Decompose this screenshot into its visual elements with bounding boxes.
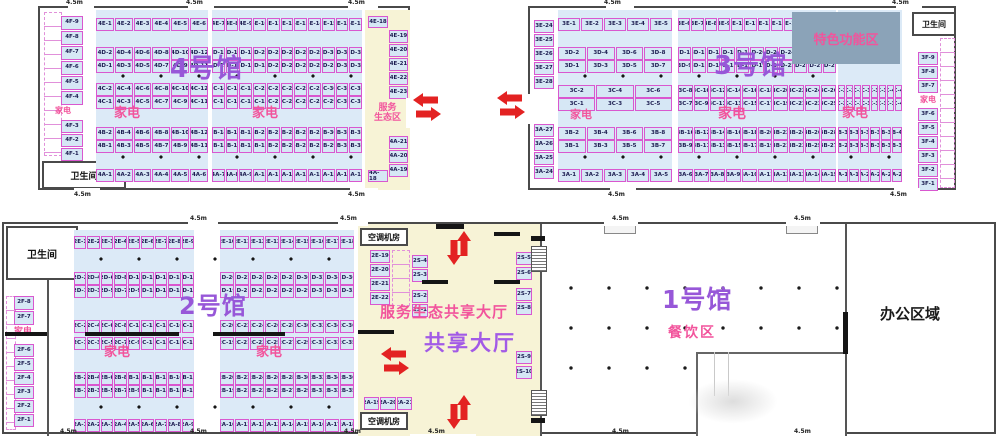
booth-2C-36[interactable]: 2C-36 xyxy=(340,320,354,333)
booth-4F-9[interactable]: 4F-9 xyxy=(61,16,83,30)
booth-2E-13[interactable]: 2E-13 xyxy=(265,236,279,249)
booth-3E-2[interactable]: 3E-2 xyxy=(581,18,603,31)
booth-4D-4[interactable]: 4D-4 xyxy=(115,47,133,60)
booth-4A-9[interactable]: 4A-9 xyxy=(239,169,252,182)
booth-3C-12[interactable]: 3C-12 xyxy=(710,85,725,98)
booth-4F-2[interactable]: 4F-2 xyxy=(61,134,83,147)
booth-3C-10[interactable]: 3C-10 xyxy=(694,85,709,98)
booth-3A-6[interactable]: 3A-6 xyxy=(678,169,693,182)
booth-3C-14[interactable]: 3C-14 xyxy=(726,85,741,98)
booth-4E-11[interactable]: 4E-11 xyxy=(267,18,280,31)
booth-4D-24[interactable]: 4D-24 xyxy=(281,47,294,60)
booth-3E-27[interactable]: 3E-27 xyxy=(534,62,554,75)
booth-4F-6[interactable]: 4F-6 xyxy=(61,61,83,75)
booth-2F-8[interactable]: 2F-8 xyxy=(14,296,34,310)
booth-3C-32[interactable]: 3C-32 xyxy=(854,85,861,98)
booth-2A-5[interactable]: 2A-5 xyxy=(128,419,140,432)
booth-3B-19[interactable]: 3B-19 xyxy=(758,140,773,153)
booth-2A-12[interactable]: 2A-12 xyxy=(250,419,264,432)
booth-3A-13[interactable]: 3A-13 xyxy=(789,169,804,182)
booth-3B-4[interactable]: 3B-4 xyxy=(587,127,615,140)
booth-2B-33[interactable]: 2B-33 xyxy=(325,385,339,398)
booth-3C-22[interactable]: 3C-22 xyxy=(789,85,804,98)
booth-2D-4[interactable]: 2D-4 xyxy=(87,272,99,285)
booth-3E-3[interactable]: 3E-3 xyxy=(604,18,626,31)
booth-2C-11[interactable]: 2C-11 xyxy=(141,337,153,350)
booth-2D-9[interactable]: 2D-9 xyxy=(128,285,140,298)
booth-2D-27[interactable]: 2D-27 xyxy=(280,285,294,298)
booth-4C-22[interactable]: 4C-22 xyxy=(267,83,280,96)
booth-3C-41[interactable]: 3C-41 xyxy=(895,98,902,111)
hall3-dashed-booth-column[interactable] xyxy=(940,38,955,188)
booth-2B-3[interactable]: 2B-3 xyxy=(87,385,99,398)
booth-4D-29[interactable]: 4D-29 xyxy=(322,60,335,73)
booth-3C-21[interactable]: 3C-21 xyxy=(789,98,804,111)
booth-2B-29[interactable]: 2B-29 xyxy=(295,385,309,398)
booth-3B-38[interactable]: 3B-38 xyxy=(881,127,891,140)
booth-4C-9[interactable]: 4C-9 xyxy=(171,96,189,109)
booth-3B-31[interactable]: 3B-31 xyxy=(849,140,859,153)
booth-2D-13[interactable]: 2D-13 xyxy=(155,285,167,298)
booth-4A-15[interactable]: 4A-15 xyxy=(322,169,335,182)
booth-2B-8[interactable]: 2B-8 xyxy=(114,372,126,385)
booth-4A-6[interactable]: 4A-6 xyxy=(190,169,208,182)
booth-3C-37[interactable]: 3C-37 xyxy=(879,98,886,111)
booth-2E-9[interactable]: 2E-9 xyxy=(182,236,194,249)
booth-2B-1[interactable]: 2B-1 xyxy=(74,385,86,398)
booth-2C-29[interactable]: 2C-29 xyxy=(295,337,309,350)
booth-4B-2[interactable]: 4B-2 xyxy=(96,127,114,140)
booth-4B-11[interactable]: 4B-11 xyxy=(190,140,208,153)
booth-2S-4[interactable]: 2S-4 xyxy=(412,255,428,268)
booth-4B-29[interactable]: 4B-29 xyxy=(322,140,335,153)
booth-4C-14[interactable]: 4C-14 xyxy=(212,83,225,96)
booth-4A-12[interactable]: 4A-12 xyxy=(281,169,294,182)
booth-3A-24[interactable]: 3A-24 xyxy=(534,166,554,179)
booth-3F-8[interactable]: 3F-8 xyxy=(918,66,938,79)
booth-3B-30[interactable]: 3B-30 xyxy=(838,127,848,140)
booth-3E-12[interactable]: 3E-12 xyxy=(758,18,770,31)
booth-4A-5[interactable]: 4A-5 xyxy=(171,169,189,182)
booth-3A-10[interactable]: 3A-10 xyxy=(742,169,757,182)
booth-3E-26[interactable]: 3E-26 xyxy=(534,48,554,61)
booth-4C-8[interactable]: 4C-8 xyxy=(152,83,170,96)
booth-2B-17[interactable]: 2B-17 xyxy=(182,385,194,398)
booth-3D-7[interactable]: 3D-7 xyxy=(644,60,672,73)
booth-4C-1[interactable]: 4C-1 xyxy=(96,96,114,109)
booth-4B-6[interactable]: 4B-6 xyxy=(134,127,152,140)
booth-3B-16[interactable]: 3B-16 xyxy=(726,127,741,140)
booth-3B-18[interactable]: 3B-18 xyxy=(742,127,757,140)
booth-2B-12[interactable]: 2B-12 xyxy=(141,372,153,385)
booth-3B-22[interactable]: 3B-22 xyxy=(773,127,788,140)
booth-2B-10[interactable]: 2B-10 xyxy=(128,372,140,385)
booth-3D-9[interactable]: 3D-9 xyxy=(678,60,691,73)
booth-4A-7[interactable]: 4A-7 xyxy=(212,169,225,182)
booth-3C-39[interactable]: 3C-39 xyxy=(887,98,894,111)
booth-2B-13[interactable]: 2B-13 xyxy=(155,385,167,398)
booth-2D-30[interactable]: 2D-30 xyxy=(295,272,309,285)
booth-2B-20[interactable]: 2B-20 xyxy=(220,372,234,385)
booth-2B-36[interactable]: 2B-36 xyxy=(340,372,354,385)
booth-4E-2[interactable]: 4E-2 xyxy=(115,18,133,31)
booth-3C-38[interactable]: 3C-38 xyxy=(879,85,886,98)
booth-4E-10[interactable]: 4E-10 xyxy=(253,18,266,31)
booth-3B-26[interactable]: 3B-26 xyxy=(805,127,820,140)
booth-2A-21[interactable]: 2A-21 xyxy=(397,397,412,410)
booth-4E-8[interactable]: 4E-8 xyxy=(226,18,239,31)
booth-3B-36[interactable]: 3B-36 xyxy=(870,127,880,140)
booth-2D-26[interactable]: 2D-26 xyxy=(265,272,279,285)
booth-3C-40[interactable]: 3C-40 xyxy=(887,85,894,98)
booth-3D-4[interactable]: 3D-4 xyxy=(587,47,615,60)
booth-4E-4[interactable]: 4E-4 xyxy=(152,18,170,31)
booth-2A-7[interactable]: 2A-7 xyxy=(155,419,167,432)
booth-2F-3[interactable]: 2F-3 xyxy=(14,386,34,399)
booth-2A-2[interactable]: 2A-2 xyxy=(87,419,99,432)
booth-2A-14[interactable]: 2A-14 xyxy=(280,419,294,432)
booth-2S-6[interactable]: 2S-6 xyxy=(516,267,532,280)
booth-2D-23[interactable]: 2D-23 xyxy=(250,285,264,298)
booth-2D-6[interactable]: 2D-6 xyxy=(101,272,113,285)
booth-2B-23[interactable]: 2B-23 xyxy=(250,385,264,398)
booth-4B-19[interactable]: 4B-19 xyxy=(253,140,266,153)
booth-2E-20[interactable]: 2E-20 xyxy=(370,264,390,277)
booth-4D-30[interactable]: 4D-30 xyxy=(322,47,335,60)
booth-3B-21[interactable]: 3B-21 xyxy=(773,140,788,153)
booth-2D-5[interactable]: 2D-5 xyxy=(101,285,113,298)
booth-3C-24[interactable]: 3C-24 xyxy=(805,85,820,98)
booth-3C-26[interactable]: 3C-26 xyxy=(821,85,836,98)
booth-4B-18[interactable]: 4B-18 xyxy=(239,127,252,140)
booth-2S-10[interactable]: 2S-10 xyxy=(516,366,532,379)
booth-2C-35[interactable]: 2C-35 xyxy=(340,337,354,350)
booth-3B-11[interactable]: 3B-11 xyxy=(694,140,709,153)
booth-3B-25[interactable]: 3B-25 xyxy=(805,140,820,153)
booth-4B-33[interactable]: 4B-33 xyxy=(349,140,362,153)
booth-3D-5[interactable]: 3D-5 xyxy=(616,60,644,73)
booth-4B-13[interactable]: 4B-13 xyxy=(212,140,225,153)
booth-3A-3[interactable]: 3A-3 xyxy=(604,169,626,182)
booth-4B-27[interactable]: 4B-27 xyxy=(308,140,321,153)
booth-3A-4[interactable]: 3A-4 xyxy=(627,169,649,182)
booth-3A-23[interactable]: 3A-23 xyxy=(892,169,902,182)
booth-2C-33[interactable]: 2C-33 xyxy=(325,337,339,350)
booth-2A-10[interactable]: 2A-10 xyxy=(220,419,234,432)
strip-dashed-column[interactable] xyxy=(392,250,410,306)
booth-3B-24[interactable]: 3B-24 xyxy=(789,127,804,140)
booth-4B-10[interactable]: 4B-10 xyxy=(171,127,189,140)
booth-3C-2[interactable]: 3C-2 xyxy=(558,85,595,98)
booth-3D-6[interactable]: 3D-6 xyxy=(616,47,644,60)
booth-2B-28[interactable]: 2B-28 xyxy=(280,372,294,385)
booth-3F-5[interactable]: 3F-5 xyxy=(918,122,938,135)
booth-4D-21[interactable]: 4D-21 xyxy=(267,60,280,73)
booth-2D-29[interactable]: 2D-29 xyxy=(295,285,309,298)
booth-2A-16[interactable]: 2A-16 xyxy=(310,419,324,432)
booth-2B-30[interactable]: 2B-30 xyxy=(295,372,309,385)
booth-3A-7[interactable]: 3A-7 xyxy=(694,169,709,182)
booth-4A-3[interactable]: 4A-3 xyxy=(134,169,152,182)
booth-3A-11[interactable]: 3A-11 xyxy=(758,169,773,182)
booth-3B-27[interactable]: 3B-27 xyxy=(821,140,836,153)
booth-4D-28[interactable]: 4D-28 xyxy=(308,47,321,60)
booth-2C-15[interactable]: 2C-15 xyxy=(168,337,180,350)
booth-2A-3[interactable]: 2A-3 xyxy=(101,419,113,432)
booth-4B-28[interactable]: 4B-28 xyxy=(308,127,321,140)
booth-3E-10[interactable]: 3E-10 xyxy=(731,18,743,31)
booth-3C-23[interactable]: 3C-23 xyxy=(805,98,820,111)
booth-3D-2[interactable]: 3D-2 xyxy=(558,47,586,60)
booth-3D-11[interactable]: 3D-11 xyxy=(692,60,705,73)
booth-3B-40[interactable]: 3B-40 xyxy=(892,127,902,140)
booth-4E-9[interactable]: 4E-9 xyxy=(239,18,252,31)
booth-2E-4[interactable]: 2E-4 xyxy=(114,236,126,249)
booth-2S-9[interactable]: 2S-9 xyxy=(516,351,532,364)
booth-4E-5[interactable]: 4E-5 xyxy=(171,18,189,31)
booth-4C-6[interactable]: 4C-6 xyxy=(134,83,152,96)
booth-4B-22[interactable]: 4B-22 xyxy=(267,127,280,140)
booth-4A-2[interactable]: 4A-2 xyxy=(115,169,133,182)
booth-4B-4[interactable]: 4B-4 xyxy=(115,127,133,140)
booth-2B-5[interactable]: 2B-5 xyxy=(101,385,113,398)
booth-4B-24[interactable]: 4B-24 xyxy=(281,127,294,140)
booth-3B-20[interactable]: 3B-20 xyxy=(758,127,773,140)
booth-3A-8[interactable]: 3A-8 xyxy=(710,169,725,182)
booth-2E-11[interactable]: 2E-11 xyxy=(235,236,249,249)
booth-2B-16[interactable]: 2B-16 xyxy=(168,372,180,385)
booth-2B-14[interactable]: 2B-14 xyxy=(155,372,167,385)
booth-4B-21[interactable]: 4B-21 xyxy=(267,140,280,153)
booth-3B-39[interactable]: 3B-39 xyxy=(892,140,902,153)
booth-2B-27[interactable]: 2B-27 xyxy=(280,385,294,398)
booth-2E-12[interactable]: 2E-12 xyxy=(250,236,264,249)
booth-3B-29[interactable]: 3B-29 xyxy=(838,140,848,153)
booth-3C-7[interactable]: 3C-7 xyxy=(678,98,693,111)
booth-2A-8[interactable]: 2A-8 xyxy=(168,419,180,432)
booth-2D-3[interactable]: 2D-3 xyxy=(87,285,99,298)
booth-2C-13[interactable]: 2C-13 xyxy=(155,337,167,350)
booth-4A-21[interactable]: 4A-21 xyxy=(389,136,408,149)
booth-4E-14[interactable]: 4E-14 xyxy=(308,18,321,31)
booth-2E-5[interactable]: 2E-5 xyxy=(128,236,140,249)
booth-4B-9[interactable]: 4B-9 xyxy=(171,140,189,153)
booth-2D-11[interactable]: 2D-11 xyxy=(141,285,153,298)
booth-4C-33[interactable]: 4C-33 xyxy=(349,96,362,109)
booth-2B-4[interactable]: 2B-4 xyxy=(87,372,99,385)
booth-4C-31[interactable]: 4C-31 xyxy=(336,96,349,109)
booth-2E-18[interactable]: 2E-18 xyxy=(340,236,354,249)
booth-4D-20[interactable]: 4D-20 xyxy=(253,47,266,60)
booth-3A-21[interactable]: 3A-21 xyxy=(870,169,880,182)
booth-3D-10[interactable]: 3D-10 xyxy=(678,47,691,60)
booth-4A-8[interactable]: 4A-8 xyxy=(226,169,239,182)
booth-4B-8[interactable]: 4B-8 xyxy=(152,127,170,140)
booth-2D-25[interactable]: 2D-25 xyxy=(265,285,279,298)
booth-4C-32[interactable]: 4C-32 xyxy=(336,83,349,96)
booth-2F-7[interactable]: 2F-7 xyxy=(14,311,34,325)
booth-3B-37[interactable]: 3B-37 xyxy=(881,140,891,153)
booth-2F-5[interactable]: 2F-5 xyxy=(14,358,34,371)
booth-2D-1[interactable]: 2D-1 xyxy=(74,285,86,298)
booth-4C-17[interactable]: 4C-17 xyxy=(239,96,252,109)
booth-3C-36[interactable]: 3C-36 xyxy=(871,85,878,98)
booth-2D-36[interactable]: 2D-36 xyxy=(340,272,354,285)
hall4-dashed-booth-column[interactable] xyxy=(44,12,62,156)
booth-3F-6[interactable]: 3F-6 xyxy=(918,108,938,121)
booth-4D-27[interactable]: 4D-27 xyxy=(308,60,321,73)
booth-4A-19[interactable]: 4A-19 xyxy=(389,164,408,177)
booth-3A-12[interactable]: 3A-12 xyxy=(773,169,788,182)
booth-2D-34[interactable]: 2D-34 xyxy=(325,272,339,285)
booth-2B-6[interactable]: 2B-6 xyxy=(101,372,113,385)
booth-4C-29[interactable]: 4C-29 xyxy=(322,96,335,109)
booth-4C-18[interactable]: 4C-18 xyxy=(239,83,252,96)
booth-2C-34[interactable]: 2C-34 xyxy=(325,320,339,333)
booth-4C-4[interactable]: 4C-4 xyxy=(115,83,133,96)
booth-4F-5[interactable]: 4F-5 xyxy=(61,76,83,90)
booth-3C-9[interactable]: 3C-9 xyxy=(694,98,709,111)
booth-2B-7[interactable]: 2B-7 xyxy=(114,385,126,398)
booth-3B-1[interactable]: 3B-1 xyxy=(558,140,586,153)
booth-2A-20[interactable]: 2A-20 xyxy=(380,397,395,410)
booth-4A-14[interactable]: 4A-14 xyxy=(308,169,321,182)
booth-2F-6[interactable]: 2F-6 xyxy=(14,344,34,357)
booth-2S-7[interactable]: 2S-7 xyxy=(516,288,532,301)
booth-2C-3[interactable]: 2C-3 xyxy=(87,337,99,350)
booth-3B-10[interactable]: 3B-10 xyxy=(678,127,693,140)
booth-3B-8[interactable]: 3B-8 xyxy=(644,127,672,140)
booth-4A-10[interactable]: 4A-10 xyxy=(253,169,266,182)
booth-2D-16[interactable]: 2D-16 xyxy=(168,272,180,285)
booth-3A-5[interactable]: 3A-5 xyxy=(650,169,672,182)
booth-3B-6[interactable]: 3B-6 xyxy=(616,127,644,140)
booth-4A-4[interactable]: 4A-4 xyxy=(152,169,170,182)
booth-4C-7[interactable]: 4C-7 xyxy=(152,96,170,109)
booth-3E-8[interactable]: 3E-8 xyxy=(705,18,717,31)
booth-3F-7[interactable]: 3F-7 xyxy=(918,80,938,93)
booth-4C-24[interactable]: 4C-24 xyxy=(281,83,294,96)
booth-4C-34[interactable]: 4C-34 xyxy=(349,83,362,96)
booth-3C-6[interactable]: 3C-6 xyxy=(635,85,672,98)
booth-3C-30[interactable]: 3C-30 xyxy=(846,85,853,98)
booth-3C-34[interactable]: 3C-34 xyxy=(862,85,869,98)
booth-3B-23[interactable]: 3B-23 xyxy=(789,140,804,153)
booth-4B-26[interactable]: 4B-26 xyxy=(294,127,307,140)
booth-4B-20[interactable]: 4B-20 xyxy=(253,127,266,140)
booth-4B-32[interactable]: 4B-32 xyxy=(336,127,349,140)
booth-3C-28[interactable]: 3C-28 xyxy=(838,85,845,98)
booth-4A-18[interactable]: 4A-18 xyxy=(368,170,388,182)
booth-3E-1[interactable]: 3E-1 xyxy=(558,18,580,31)
booth-2A-17[interactable]: 2A-17 xyxy=(325,419,339,432)
booth-4A-20[interactable]: 4A-20 xyxy=(389,150,408,163)
booth-4B-31[interactable]: 4B-31 xyxy=(336,140,349,153)
booth-3B-33[interactable]: 3B-33 xyxy=(860,140,870,153)
booth-3E-7[interactable]: 3E-7 xyxy=(691,18,703,31)
booth-4A-1[interactable]: 4A-1 xyxy=(96,169,114,182)
booth-4D-2[interactable]: 4D-2 xyxy=(96,47,114,60)
booth-2S-8[interactable]: 2S-8 xyxy=(516,302,532,315)
booth-2E-16[interactable]: 2E-16 xyxy=(310,236,324,249)
booth-4C-30[interactable]: 4C-30 xyxy=(322,83,335,96)
booth-4D-34[interactable]: 4D-34 xyxy=(349,47,362,60)
booth-4B-25[interactable]: 4B-25 xyxy=(294,140,307,153)
booth-4B-14[interactable]: 4B-14 xyxy=(212,127,225,140)
booth-4E-21[interactable]: 4E-21 xyxy=(389,58,408,71)
booth-2D-12[interactable]: 2D-12 xyxy=(141,272,153,285)
booth-2D-10[interactable]: 2D-10 xyxy=(128,272,140,285)
booth-2B-34[interactable]: 2B-34 xyxy=(325,372,339,385)
booth-2D-18[interactable]: 2D-18 xyxy=(182,272,194,285)
booth-2C-21[interactable]: 2C-21 xyxy=(235,337,249,350)
booth-4E-22[interactable]: 4E-22 xyxy=(389,72,408,85)
booth-4B-17[interactable]: 4B-17 xyxy=(239,140,252,153)
booth-3E-5[interactable]: 3E-5 xyxy=(650,18,672,31)
booth-4B-34[interactable]: 4B-34 xyxy=(349,127,362,140)
booth-2D-32[interactable]: 2D-32 xyxy=(310,272,324,285)
booth-3D-12[interactable]: 3D-12 xyxy=(692,47,705,60)
booth-3B-32[interactable]: 3B-32 xyxy=(849,127,859,140)
booth-4B-30[interactable]: 4B-30 xyxy=(322,127,335,140)
booth-2E-2[interactable]: 2E-2 xyxy=(87,236,99,249)
booth-4C-25[interactable]: 4C-25 xyxy=(294,96,307,109)
booth-2C-27[interactable]: 2C-27 xyxy=(280,337,294,350)
booth-4A-11[interactable]: 4A-11 xyxy=(267,169,280,182)
booth-2B-2[interactable]: 2B-2 xyxy=(74,372,86,385)
booth-4F-7[interactable]: 4F-7 xyxy=(61,46,83,60)
booth-3C-20[interactable]: 3C-20 xyxy=(773,85,788,98)
booth-4C-13[interactable]: 4C-13 xyxy=(212,96,225,109)
booth-3C-35[interactable]: 3C-35 xyxy=(871,98,878,111)
booth-4C-28[interactable]: 4C-28 xyxy=(308,83,321,96)
booth-2D-35[interactable]: 2D-35 xyxy=(340,285,354,298)
booth-3C-25[interactable]: 3C-25 xyxy=(821,98,836,111)
booth-2B-19[interactable]: 2B-19 xyxy=(220,385,234,398)
booth-2C-32[interactable]: 2C-32 xyxy=(310,320,324,333)
booth-3B-14[interactable]: 3B-14 xyxy=(710,127,725,140)
booth-3A-14[interactable]: 3A-14 xyxy=(805,169,820,182)
booth-2D-22[interactable]: 2D-22 xyxy=(235,272,249,285)
booth-4E-3[interactable]: 4E-3 xyxy=(134,18,152,31)
booth-4E-12[interactable]: 4E-12 xyxy=(281,18,294,31)
booth-4F-1[interactable]: 4F-1 xyxy=(61,148,83,161)
booth-2B-26[interactable]: 2B-26 xyxy=(265,372,279,385)
booth-3A-20[interactable]: 3A-20 xyxy=(860,169,870,182)
booth-4D-22[interactable]: 4D-22 xyxy=(267,47,280,60)
booth-2C-1[interactable]: 2C-1 xyxy=(74,337,86,350)
booth-4C-23[interactable]: 4C-23 xyxy=(281,96,294,109)
booth-2E-3[interactable]: 2E-3 xyxy=(101,236,113,249)
booth-3D-8[interactable]: 3D-8 xyxy=(644,47,672,60)
booth-3B-34[interactable]: 3B-34 xyxy=(860,127,870,140)
booth-2E-14[interactable]: 2E-14 xyxy=(280,236,294,249)
booth-3A-22[interactable]: 3A-22 xyxy=(881,169,891,182)
booth-2C-31[interactable]: 2C-31 xyxy=(310,337,324,350)
booth-4B-3[interactable]: 4B-3 xyxy=(115,140,133,153)
booth-3A-26[interactable]: 3A-26 xyxy=(534,138,554,151)
booth-2D-24[interactable]: 2D-24 xyxy=(250,272,264,285)
booth-3C-18[interactable]: 3C-18 xyxy=(758,85,773,98)
booth-4A-13[interactable]: 4A-13 xyxy=(294,169,307,182)
booth-4D-23[interactable]: 4D-23 xyxy=(281,60,294,73)
booth-3C-17[interactable]: 3C-17 xyxy=(758,98,773,111)
booth-4F-4[interactable]: 4F-4 xyxy=(61,91,83,105)
booth-2B-24[interactable]: 2B-24 xyxy=(250,372,264,385)
booth-4E-16[interactable]: 4E-16 xyxy=(336,18,349,31)
booth-4D-1[interactable]: 4D-1 xyxy=(96,60,114,73)
booth-3E-13[interactable]: 3E-13 xyxy=(771,18,783,31)
